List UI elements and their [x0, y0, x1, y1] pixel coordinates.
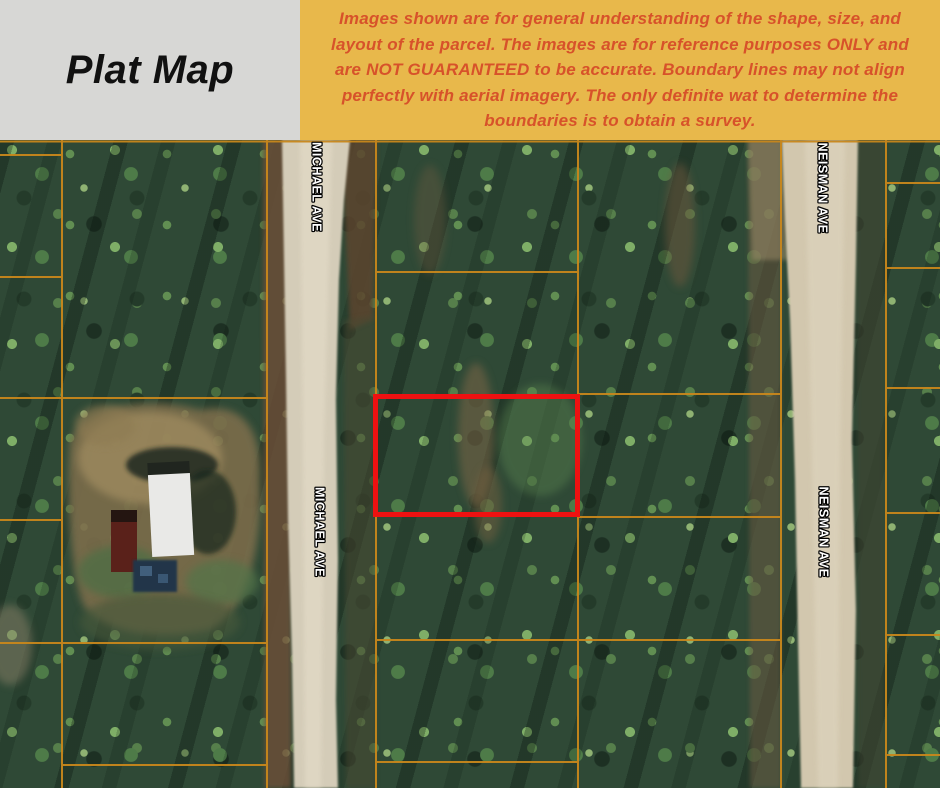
street-label-neisman-ave-bottom: NEISMAN AVE — [817, 487, 831, 578]
map-overlay: MICHAEL AVE MICHAEL AVE NEISMAN AVE NEIS… — [0, 140, 940, 788]
disclaimer-text: Images shown are for general understandi… — [300, 6, 940, 134]
shed-roof — [111, 510, 137, 524]
vehicle-highlight — [140, 566, 152, 576]
disclaimer-line: perfectly with aerial imagery. The only … — [300, 83, 940, 109]
vehicle-highlight — [158, 574, 168, 583]
title-box: Plat Map — [0, 0, 300, 140]
disclaimer-line: Images shown are for general understandi… — [300, 6, 940, 32]
terrain-patches — [414, 163, 695, 543]
street-label-michael-ave-top: MICHAEL AVE — [310, 142, 324, 232]
road-neisman-ave — [748, 140, 884, 788]
disclaimer-banner: Images shown are for general understandi… — [300, 0, 940, 140]
dark-vehicle — [133, 560, 177, 592]
street-label-neisman-ave-top: NEISMAN AVE — [816, 143, 830, 234]
disclaimer-line: are NOT GUARANTEED to be accurate. Bound… — [300, 57, 940, 83]
page-title: Plat Map — [66, 48, 234, 93]
white-roof-building — [148, 473, 194, 557]
road-michael-ave — [263, 140, 377, 788]
disclaimer-line: layout of the parcel. The images are for… — [300, 32, 940, 58]
plat-map-page: Plat Map Images shown are for general un… — [0, 0, 940, 788]
aerial-plat-map: MICHAEL AVE MICHAEL AVE NEISMAN AVE NEIS… — [0, 140, 940, 788]
street-label-michael-ave-bottom: MICHAEL AVE — [313, 487, 327, 577]
disclaimer-line: boundaries is to obtain a survey. — [300, 108, 940, 134]
